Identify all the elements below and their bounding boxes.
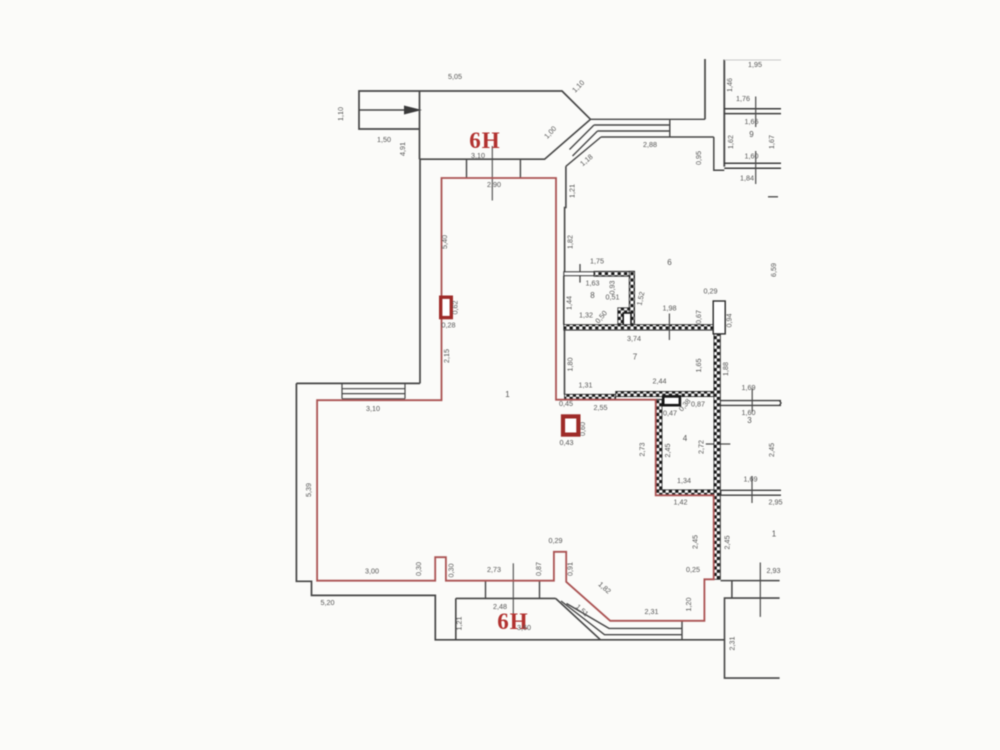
svg-text:0,95: 0,95 — [694, 151, 703, 165]
svg-text:2,31: 2,31 — [728, 637, 737, 651]
svg-text:7: 7 — [633, 353, 638, 362]
svg-text:5,39: 5,39 — [304, 483, 313, 497]
svg-text:0,87: 0,87 — [691, 400, 705, 409]
svg-text:1,76: 1,76 — [736, 94, 750, 103]
svg-text:1,66: 1,66 — [745, 117, 759, 126]
svg-text:1,21: 1,21 — [455, 617, 464, 631]
svg-text:2,44: 2,44 — [653, 377, 667, 386]
svg-text:3,10: 3,10 — [471, 151, 485, 160]
svg-text:1,44: 1,44 — [565, 296, 574, 310]
svg-text:0,67: 0,67 — [694, 310, 703, 324]
svg-text:1,69: 1,69 — [744, 475, 758, 484]
svg-text:3,10: 3,10 — [366, 404, 380, 413]
svg-text:1,69: 1,69 — [742, 383, 756, 392]
svg-text:3: 3 — [747, 416, 752, 425]
svg-text:3,00: 3,00 — [365, 567, 379, 576]
svg-text:0,47: 0,47 — [663, 409, 677, 418]
svg-text:0,29: 0,29 — [704, 287, 718, 296]
svg-text:1,00: 1,00 — [542, 124, 558, 140]
svg-text:1,82: 1,82 — [596, 580, 612, 596]
svg-text:4,91: 4,91 — [398, 142, 407, 156]
svg-text:1,82: 1,82 — [566, 235, 575, 249]
svg-text:1,63: 1,63 — [586, 279, 600, 288]
svg-text:2,45: 2,45 — [767, 443, 776, 457]
svg-text:0,30: 0,30 — [447, 564, 456, 578]
svg-text:5,20: 5,20 — [321, 598, 335, 607]
svg-text:1,10: 1,10 — [570, 78, 586, 94]
svg-text:6H: 6H — [469, 128, 500, 153]
svg-text:2,93: 2,93 — [767, 566, 781, 575]
svg-text:1,10: 1,10 — [336, 107, 345, 121]
svg-text:2,88: 2,88 — [643, 140, 657, 149]
svg-text:0,25: 0,25 — [686, 565, 700, 574]
svg-text:1,62: 1,62 — [726, 135, 735, 149]
svg-text:0,43: 0,43 — [560, 438, 574, 447]
svg-text:3,74: 3,74 — [627, 334, 641, 343]
svg-text:5,05: 5,05 — [448, 72, 462, 81]
svg-text:0,51: 0,51 — [606, 293, 620, 302]
svg-text:0,50: 0,50 — [593, 309, 609, 326]
svg-text:1,60: 1,60 — [745, 152, 759, 161]
svg-text:1,32: 1,32 — [579, 311, 593, 320]
svg-text:1,88: 1,88 — [721, 362, 730, 376]
svg-text:6,59: 6,59 — [769, 263, 778, 277]
svg-text:1,80: 1,80 — [566, 358, 575, 372]
svg-text:0,29: 0,29 — [549, 536, 563, 545]
svg-text:0,87: 0,87 — [534, 562, 543, 576]
svg-text:1,95: 1,95 — [748, 60, 762, 69]
svg-text:0,30: 0,30 — [414, 562, 423, 576]
svg-text:1,50: 1,50 — [377, 135, 391, 144]
svg-text:2,15: 2,15 — [442, 349, 451, 363]
svg-text:0,60: 0,60 — [578, 422, 587, 436]
svg-text:5,40: 5,40 — [440, 235, 449, 249]
svg-text:1,52: 1,52 — [635, 291, 647, 307]
svg-text:2,45: 2,45 — [663, 444, 672, 458]
svg-text:1,67: 1,67 — [767, 135, 776, 149]
svg-text:0,91: 0,91 — [566, 562, 575, 576]
svg-text:3,60: 3,60 — [517, 623, 531, 632]
svg-text:0,62: 0,62 — [451, 301, 460, 315]
svg-text:0,45: 0,45 — [559, 399, 573, 408]
svg-text:6: 6 — [667, 258, 672, 267]
svg-text:1: 1 — [505, 390, 510, 399]
svg-text:1,46: 1,46 — [725, 78, 734, 92]
svg-text:8: 8 — [590, 291, 595, 300]
svg-text:2,95: 2,95 — [769, 498, 783, 507]
svg-text:1,34: 1,34 — [677, 476, 691, 485]
svg-text:1,75: 1,75 — [590, 257, 604, 266]
svg-text:2,48: 2,48 — [493, 602, 507, 611]
svg-text:1: 1 — [772, 530, 777, 539]
svg-text:2,45: 2,45 — [691, 535, 700, 549]
svg-text:2,90: 2,90 — [487, 180, 501, 189]
svg-text:2,45: 2,45 — [723, 536, 732, 550]
svg-text:1,21: 1,21 — [568, 184, 577, 198]
svg-text:1,98: 1,98 — [663, 304, 677, 313]
svg-text:2,73: 2,73 — [638, 443, 647, 457]
svg-text:2,73: 2,73 — [487, 565, 501, 574]
svg-text:1,65: 1,65 — [694, 359, 703, 373]
svg-text:2,55: 2,55 — [594, 403, 608, 412]
svg-text:0,28: 0,28 — [442, 321, 456, 330]
svg-text:2,31: 2,31 — [645, 607, 659, 616]
svg-text:1,20: 1,20 — [684, 598, 693, 612]
svg-text:1,84: 1,84 — [740, 174, 754, 183]
svg-text:2,72: 2,72 — [697, 440, 706, 454]
svg-text:4: 4 — [683, 434, 688, 443]
svg-text:0,94: 0,94 — [725, 314, 734, 328]
svg-text:9: 9 — [749, 130, 754, 139]
svg-text:1,42: 1,42 — [674, 498, 688, 507]
svg-text:1,31: 1,31 — [579, 381, 593, 390]
